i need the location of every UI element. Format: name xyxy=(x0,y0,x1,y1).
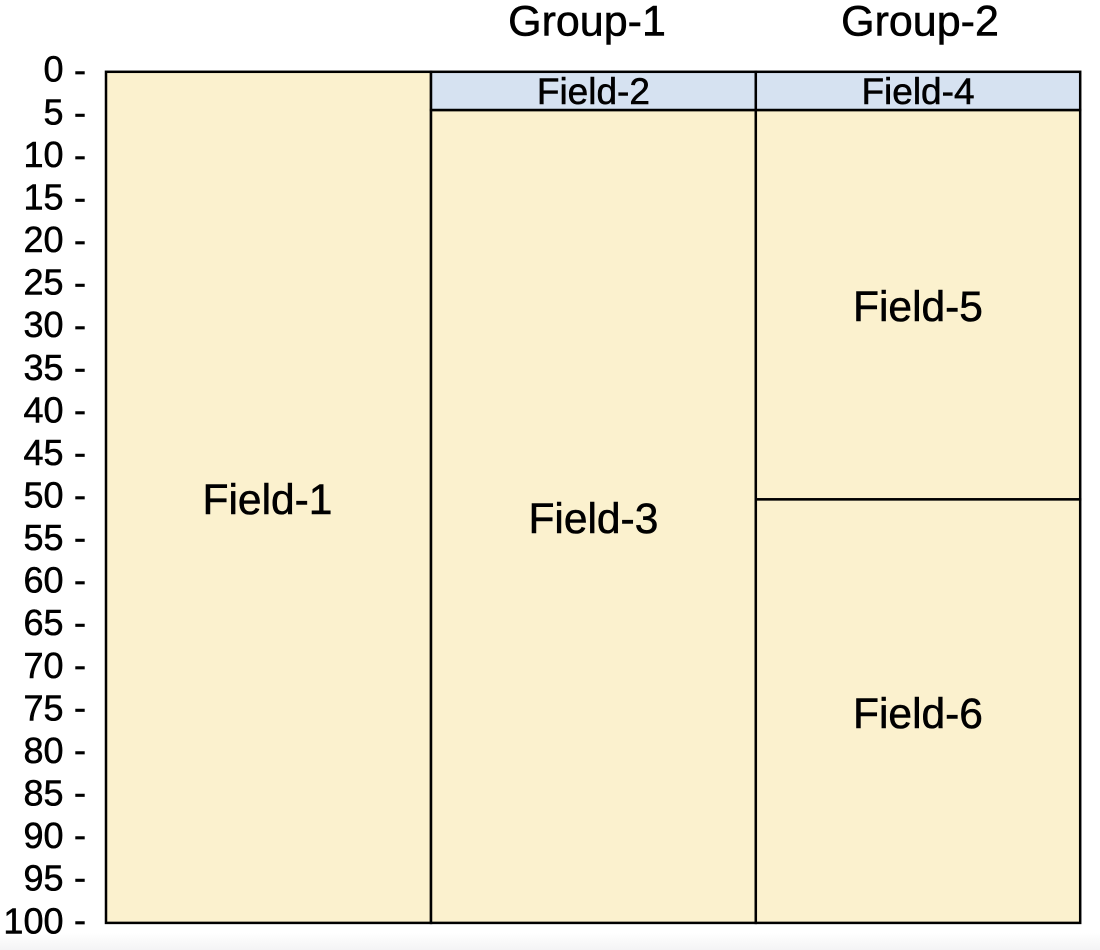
svg-text:30: 30 xyxy=(23,304,63,345)
svg-text:35: 35 xyxy=(23,347,63,388)
svg-text:90: 90 xyxy=(23,815,63,856)
svg-text:15: 15 xyxy=(23,176,63,217)
svg-text:80: 80 xyxy=(23,730,63,771)
svg-text:Field-1: Field-1 xyxy=(203,477,333,524)
svg-text:95: 95 xyxy=(23,858,63,899)
svg-text:10: 10 xyxy=(23,134,63,175)
svg-text:Field-2: Field-2 xyxy=(537,71,650,112)
svg-text:70: 70 xyxy=(23,645,63,686)
svg-text:45: 45 xyxy=(23,432,63,473)
svg-text:Field-3: Field-3 xyxy=(528,496,658,543)
svg-text:85: 85 xyxy=(23,773,63,814)
svg-text:Group-1: Group-1 xyxy=(508,0,666,46)
svg-text:100: 100 xyxy=(3,900,63,941)
svg-text:65: 65 xyxy=(23,602,63,643)
svg-text:50: 50 xyxy=(23,475,63,516)
svg-text:0: 0 xyxy=(43,49,63,90)
svg-text:60: 60 xyxy=(23,560,63,601)
svg-text:Field-5: Field-5 xyxy=(853,284,983,331)
svg-text:Field-6: Field-6 xyxy=(853,691,983,738)
svg-text:25: 25 xyxy=(23,262,63,303)
svg-text:Group-2: Group-2 xyxy=(841,0,999,46)
svg-text:55: 55 xyxy=(23,517,63,558)
svg-text:20: 20 xyxy=(23,219,63,260)
svg-text:Field-4: Field-4 xyxy=(861,71,974,112)
svg-text:40: 40 xyxy=(23,389,63,430)
svg-text:5: 5 xyxy=(43,91,63,132)
svg-text:75: 75 xyxy=(23,687,63,728)
